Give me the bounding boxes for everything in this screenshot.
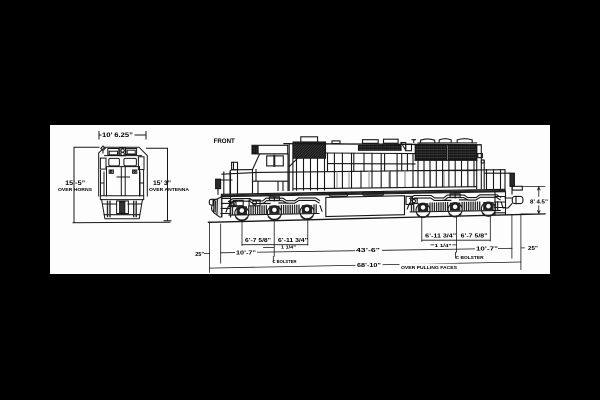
- svg-text:1 1/4”: 1 1/4”: [281, 244, 297, 250]
- svg-text:10’-7”: 10’-7”: [476, 246, 498, 252]
- svg-text:1 1/4”: 1 1/4”: [435, 243, 453, 249]
- svg-text:6’-11 3/4”: 6’-11 3/4”: [425, 234, 456, 240]
- svg-text:43’-6”: 43’-6”: [356, 248, 380, 254]
- svg-text:6’-7 5/8”: 6’-7 5/8”: [461, 234, 488, 240]
- svg-text:OVER ANTENNA: OVER ANTENNA: [149, 187, 190, 193]
- svg-text:10’ 6.25”: 10’ 6.25”: [102, 132, 133, 139]
- svg-text:6’-7 5/8”: 6’-7 5/8”: [245, 238, 271, 244]
- svg-text:6’-11 3/4”: 6’-11 3/4”: [278, 238, 308, 244]
- svg-text:8’ 4.5”: 8’ 4.5”: [530, 199, 548, 205]
- svg-text:FRONT: FRONT: [214, 138, 236, 145]
- svg-text:C BOLSTER: C BOLSTER: [456, 255, 485, 260]
- svg-text:25”: 25”: [195, 252, 204, 258]
- svg-text:15’ 3”: 15’ 3”: [153, 181, 171, 187]
- svg-text:C BOLSTER: C BOLSTER: [273, 259, 298, 264]
- svg-text:10’-7”: 10’-7”: [236, 251, 256, 257]
- svg-text:25”: 25”: [528, 246, 538, 252]
- svg-text:OVER PULLING FACES: OVER PULLING FACES: [401, 265, 458, 271]
- svg-text:15’-5”: 15’-5”: [65, 181, 85, 187]
- svg-text:68’-10”: 68’-10”: [357, 263, 381, 269]
- svg-text:OVER HORNS: OVER HORNS: [58, 187, 93, 193]
